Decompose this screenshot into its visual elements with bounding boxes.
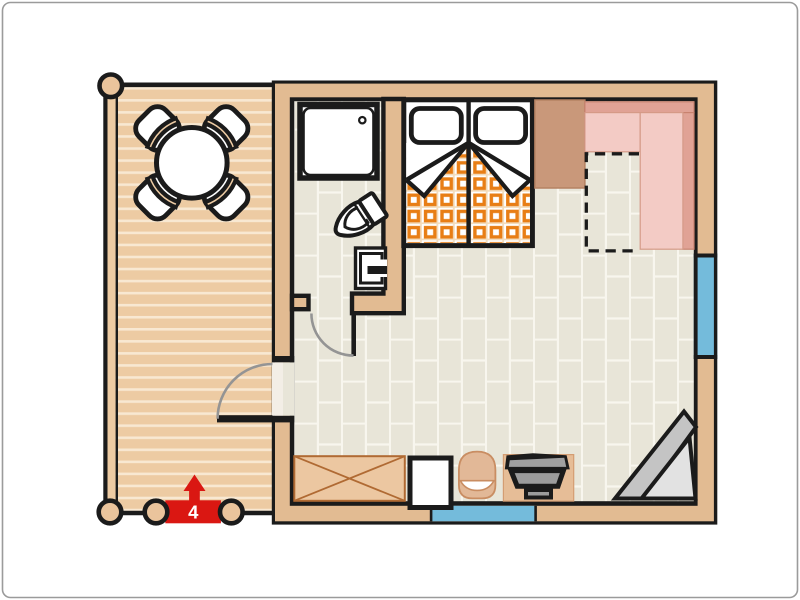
svg-text:4: 4 <box>188 502 199 523</box>
